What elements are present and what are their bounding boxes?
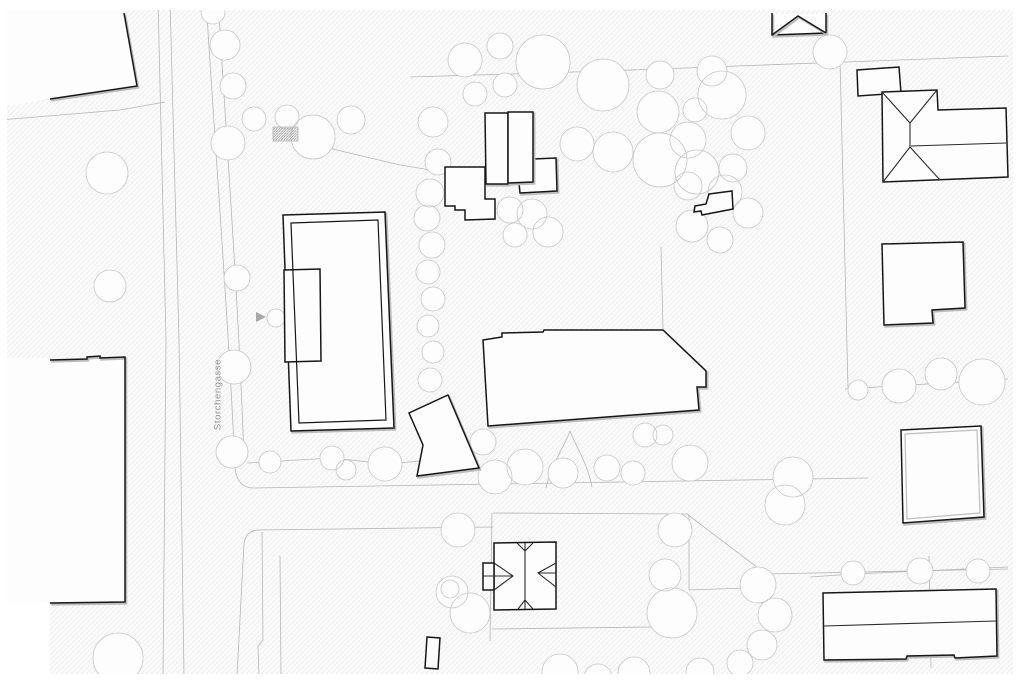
building-north-east-wing (508, 112, 533, 183)
building-north-west-wing (485, 113, 508, 184)
building-east-square (901, 426, 984, 523)
margin-left (0, 0, 7, 683)
building-court-annex (284, 269, 321, 362)
margin-bottom (0, 674, 1024, 683)
building-main-hall (483, 330, 706, 426)
building-southeast-long (823, 589, 997, 660)
margin-top (0, 0, 1024, 10)
building-left-fill (0, 357, 125, 604)
site-plan-canvas (0, 0, 1024, 683)
building-south-small (425, 637, 440, 669)
crosswalk-hatch (273, 127, 298, 141)
margin-right (1013, 0, 1024, 683)
site-plan-viewport: Storchengasse (0, 0, 1024, 683)
